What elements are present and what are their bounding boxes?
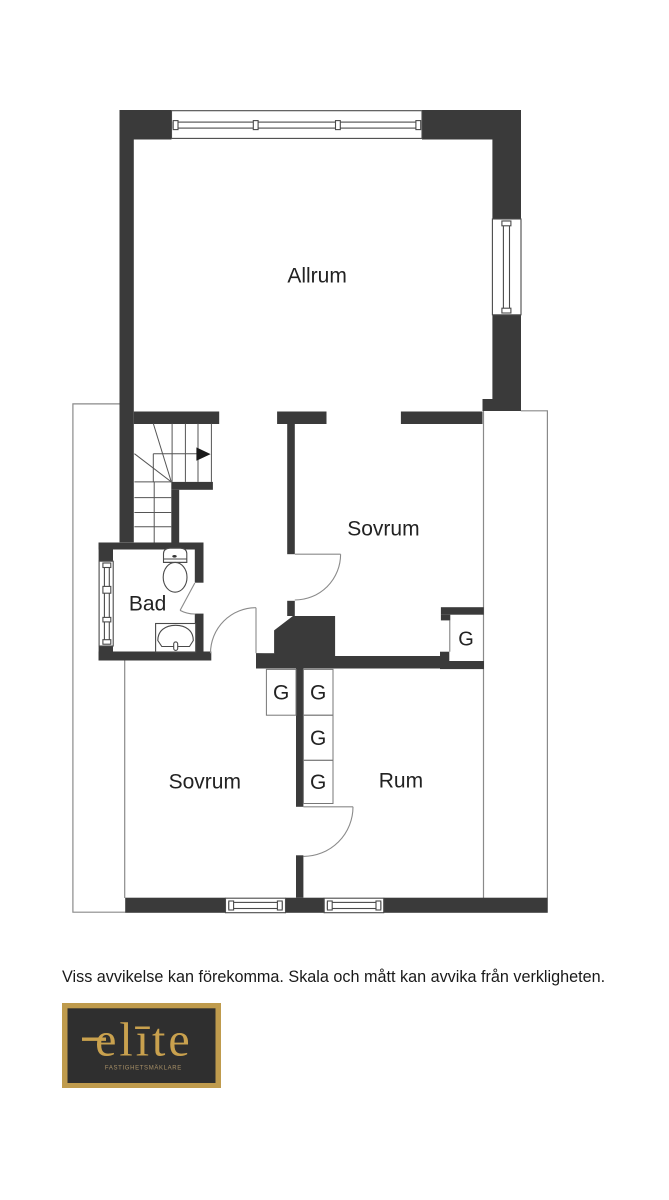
svg-text:Sovrum: Sovrum <box>347 518 419 541</box>
svg-text:Sovrum: Sovrum <box>169 771 241 794</box>
svg-text:Viss avvikelse kan förekomma.: Viss avvikelse kan förekomma. Skala och … <box>62 968 605 986</box>
svg-text:Bad: Bad <box>129 593 166 616</box>
svg-text:G: G <box>310 771 326 794</box>
svg-text:G: G <box>458 629 474 651</box>
svg-text:G: G <box>273 682 289 705</box>
svg-text:G: G <box>310 682 326 705</box>
svg-text:Allrum: Allrum <box>287 265 347 288</box>
svg-text:Rum: Rum <box>379 769 423 792</box>
svg-text:elīte: elīte <box>95 1014 193 1067</box>
svg-text:FASTIGHETSMÄKLARE: FASTIGHETSMÄKLARE <box>105 1065 182 1072</box>
svg-text:G: G <box>310 727 326 750</box>
